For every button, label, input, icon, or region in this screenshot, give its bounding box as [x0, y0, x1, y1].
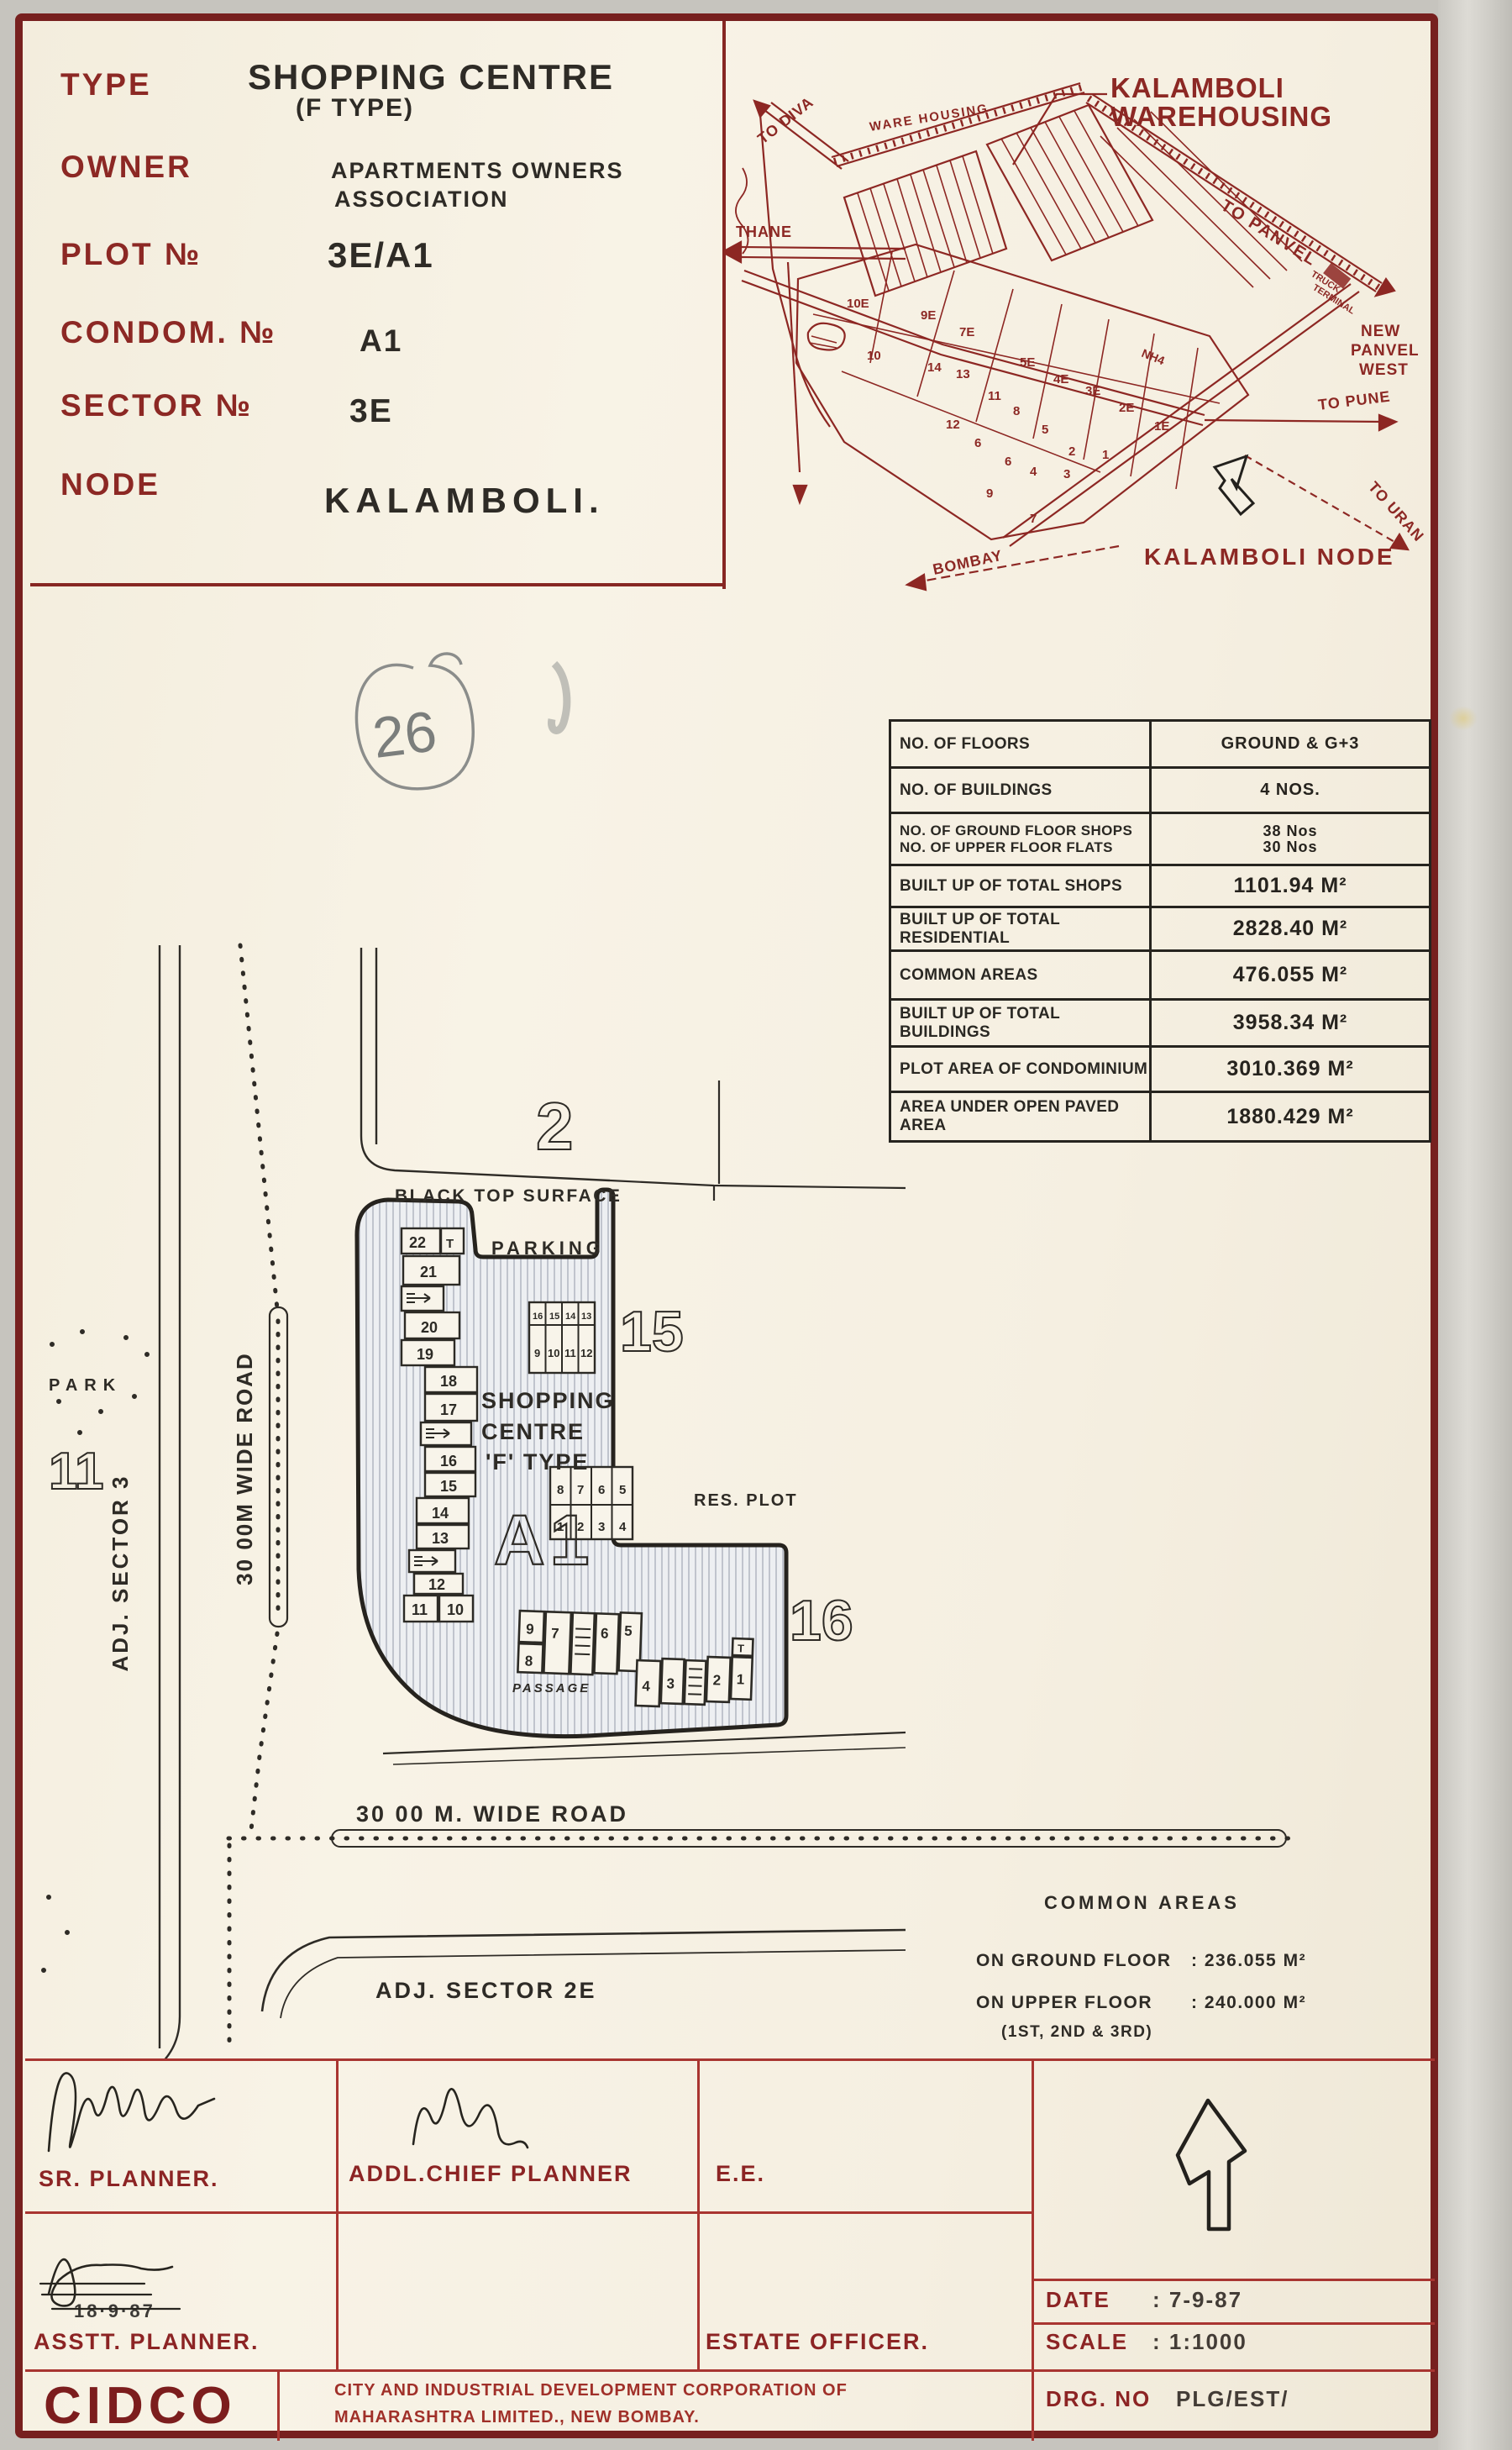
plot-number-16: 16	[790, 1589, 853, 1653]
map-plot-number: 9E	[921, 308, 936, 323]
row-label: BUILT UP OF TOTAL SHOPS	[900, 877, 1149, 896]
road-south-label: 30 00 M. WIDE ROAD	[356, 1801, 628, 1827]
map-plot-number: 3	[1063, 467, 1070, 481]
adj-sector-2e-label: ADJ. SECTOR 2E	[375, 1978, 597, 2003]
plots-band-outline	[796, 244, 1248, 539]
map-plot-number: 14	[927, 360, 942, 375]
ground-floor-label: ON GROUND FLOOR	[976, 1951, 1172, 1971]
signatures-layer	[25, 2050, 1436, 2450]
sector-no-value: 3E	[349, 393, 393, 430]
type-label: TYPE	[60, 67, 152, 103]
scan-edge	[1438, 0, 1512, 2450]
type-value-2: (F TYPE)	[296, 94, 414, 123]
shopping-centre-label-2: CENTRE	[481, 1419, 585, 1444]
stair-unit	[685, 1660, 706, 1705]
to-uran-label: TO URAN	[1365, 478, 1427, 544]
table-row: NO. OF BUILDINGS 4 NOS.	[891, 769, 1429, 814]
map-plot-number: 1E	[1154, 419, 1169, 434]
shop-number: 13	[432, 1530, 449, 1547]
shop-number: 15	[440, 1478, 457, 1495]
road-to-uran	[1245, 455, 1396, 543]
owner-value: APARTMENTS OWNERS	[331, 158, 624, 184]
shop-number: 6	[601, 1626, 609, 1642]
map-plot-number: 12	[946, 418, 960, 432]
grid-shop-number: 11	[564, 1347, 576, 1359]
road-se-boundary	[1003, 284, 1359, 546]
river	[736, 168, 748, 254]
pencil-smudge	[552, 664, 567, 730]
new-panvel-label-2: PANVEL	[1351, 342, 1420, 360]
row-label: NO. OF GROUND FLOOR SHOPS	[900, 823, 1149, 839]
shop-number: 18	[440, 1373, 457, 1390]
map-plot-number: 11	[988, 389, 1001, 403]
grid-shop-number: 16	[533, 1312, 543, 1322]
road-nh4	[742, 271, 1205, 425]
upper-floor-value: : 240.000 M²	[1191, 1993, 1306, 2013]
plot-number-11: 11	[49, 1443, 104, 1501]
shop-number: 3	[666, 1675, 675, 1691]
map-title-2: WAREHOUSING	[1110, 101, 1332, 132]
map-plot-number: 7	[1030, 512, 1037, 526]
table-row: NO. OF FLOORS GROUND & G+3	[891, 722, 1429, 769]
shop-number: T	[446, 1237, 454, 1251]
row-label: NO. OF BUILDINGS	[900, 781, 1149, 800]
site-plan: 2 BLACK TOP SURFACE PARKING 15 16 11 PAR…	[25, 924, 1336, 2058]
shop-number: 12	[428, 1576, 445, 1593]
title-block-bottom-rule	[30, 583, 726, 586]
building-label-a1: A1	[494, 1501, 594, 1580]
shop-number: 10	[447, 1601, 464, 1618]
grid-shop-number: 13	[581, 1312, 591, 1322]
table-row: BUILT UP OF TOTAL SHOPS 1101.94 M²	[891, 866, 1429, 908]
grid-shop-number: 1	[557, 1520, 564, 1534]
shop-number: 11	[412, 1601, 428, 1618]
new-panvel-label-1: NEW	[1361, 323, 1400, 340]
shop-number: 4	[642, 1678, 651, 1694]
row-label-2: NO. OF UPPER FLOOR FLATS	[900, 839, 1149, 856]
row-value: 1101.94 M²	[1233, 875, 1347, 896]
arrowhead-pune	[1379, 415, 1396, 430]
grid-shop-number: 9	[534, 1347, 540, 1359]
passage-label: PASSAGE	[512, 1681, 591, 1696]
grid-shop-number: 8	[557, 1483, 564, 1497]
shop-number: 16	[440, 1453, 457, 1469]
addl-chief-planner-signature	[413, 2089, 528, 2148]
shop-number: 8	[525, 1653, 533, 1669]
arrowhead-south	[794, 486, 806, 502]
shop-number: 1	[736, 1671, 744, 1687]
shop-number: 20	[421, 1319, 438, 1336]
common-areas-heading: COMMON AREAS	[1044, 1892, 1240, 1914]
to-diva-label: TO DIVA	[754, 93, 816, 147]
grid-shop-number: 5	[619, 1483, 626, 1497]
grid-shop-number: 4	[619, 1520, 627, 1534]
map-plot-number: 2	[1068, 444, 1075, 459]
node-pointer-icon	[1215, 456, 1253, 514]
shop-number: 19	[417, 1346, 433, 1363]
shop-number: T	[738, 1642, 745, 1654]
upper-floor-label: ON UPPER FLOOR	[976, 1993, 1152, 2013]
pencil-annotation: 26	[336, 634, 613, 811]
road-west-label: 30 00M WIDE ROAD	[232, 1352, 257, 1585]
map-plot-number: 3E	[1085, 384, 1100, 398]
shop-number: 14	[432, 1505, 449, 1522]
grid-shop-number: 7	[577, 1483, 584, 1497]
road-edge	[610, 1180, 906, 1188]
shopping-centre-label-3: 'F' TYPE	[486, 1449, 589, 1475]
table-row: NO. OF GROUND FLOOR SHOPS NO. OF UPPER F…	[891, 814, 1429, 866]
arrowhead-diva	[754, 101, 769, 117]
owner-value-2: ASSOCIATION	[334, 187, 509, 213]
shop-number: 9	[526, 1621, 534, 1637]
shop-number: 5	[624, 1622, 633, 1638]
map-plot-number: 5E	[1020, 355, 1035, 370]
map-plot-number: 1	[1102, 448, 1109, 462]
black-top-surface-label: BLACK TOP SURFACE	[395, 1186, 622, 1206]
shop-number: 7	[551, 1625, 559, 1641]
asstt-planner-signature	[49, 2259, 172, 2305]
map-plot-number: 7E	[959, 325, 974, 339]
upper-floor-note: (1ST, 2ND & 3RD)	[1001, 2023, 1152, 2042]
grid-shop-number: 15	[549, 1312, 559, 1322]
grid-shop-number: 2	[577, 1520, 584, 1534]
location-map: KALAMBOLI WAREHOUSING WARE HOUSING TO DI…	[724, 50, 1431, 598]
plots-band-road	[813, 314, 1220, 472]
ground-floor-value: : 236.055 M²	[1191, 1951, 1306, 1971]
map-plot-number: 10	[867, 349, 881, 363]
row-value: 4 NOS.	[1260, 781, 1320, 799]
plot-number-2: 2	[536, 1089, 574, 1164]
node-label: NODE	[60, 467, 160, 502]
shop-unit	[594, 1613, 618, 1674]
map-plot-number: 5	[1042, 423, 1048, 437]
grid-shop-number: 12	[580, 1347, 592, 1359]
map-plot-number: 4	[1030, 465, 1037, 479]
adj-sector-3-label: ADJ. SECTOR 3	[108, 1474, 133, 1671]
plot-no-value: 3E/A1	[328, 235, 434, 276]
kalamboli-node-label: KALAMBOLI NODE	[1144, 544, 1395, 570]
grid-shop-number: 3	[598, 1520, 605, 1534]
owner-label: OWNER	[60, 150, 192, 185]
row-value: GROUND & G+3	[1221, 735, 1360, 753]
map-plot-number: 6	[1005, 455, 1011, 469]
map-plot-number: 13	[956, 367, 970, 381]
stair-unit	[570, 1612, 595, 1675]
row-label: NO. OF FLOORS	[900, 735, 1149, 754]
shop-number: 2	[712, 1672, 721, 1688]
arrowhead-thane	[724, 242, 741, 262]
thane-label: THANE	[736, 223, 792, 240]
to-pune-label: TO PUNE	[1317, 388, 1391, 413]
road-edge	[143, 945, 180, 2058]
shopping-centre-label-1: SHOPPING	[481, 1388, 615, 1413]
plot-no-label: PLOT №	[60, 237, 202, 272]
grid-shop-number: 10	[548, 1347, 559, 1359]
road-to-pune	[1205, 420, 1383, 422]
warehousing-label: WARE HOUSING	[869, 102, 990, 134]
new-panvel-label-3: WEST	[1359, 361, 1409, 379]
shop-number: 21	[420, 1264, 437, 1280]
warehouse-grid-lines	[858, 156, 993, 291]
map-title-1: KALAMBOLI	[1110, 72, 1284, 103]
condom-no-label: CONDOM. №	[60, 315, 276, 350]
nh4-label: NH4	[1140, 346, 1167, 367]
north-arrow-icon	[1178, 2100, 1245, 2229]
road-centerline-dots	[240, 945, 277, 1309]
park-label: PARK	[49, 1376, 122, 1395]
map-plot-number: 4E	[1053, 372, 1068, 386]
warehouse-grid-lines	[1001, 111, 1138, 255]
grid-shop-number: 14	[565, 1312, 576, 1322]
road-centerline-dots	[251, 1633, 277, 1830]
pencil-number: 26	[370, 699, 440, 770]
warehouse-band-lines	[1100, 112, 1302, 287]
map-plot-number: 9	[986, 486, 993, 501]
shop-unit	[543, 1611, 571, 1674]
parking-label: PARKING	[491, 1238, 605, 1259]
node-value: KALAMBOLI.	[324, 481, 605, 521]
shop-number: 22	[409, 1234, 426, 1251]
shop-number: 17	[440, 1401, 457, 1418]
arrowhead-bombay	[907, 575, 926, 590]
grid-shop-number: 6	[598, 1483, 605, 1497]
sector-no-label: SECTOR №	[60, 388, 253, 423]
condom-no-value: A1	[360, 323, 402, 359]
row-value-2: 30 Nos	[1263, 839, 1317, 855]
sr-planner-signature	[49, 2073, 214, 2151]
plot-division-lines	[870, 252, 1198, 489]
res-plot-label: RES. PLOT	[694, 1491, 798, 1510]
type-value: SHOPPING CENTRE	[248, 57, 614, 97]
map-plot-number: 10E	[847, 297, 869, 311]
map-plot-number: 8	[1013, 404, 1020, 418]
map-plot-number: 6	[974, 436, 981, 450]
bombay-label: BOMBAY	[932, 547, 1005, 578]
road-thane	[741, 247, 906, 259]
map-plot-number: 2E	[1119, 401, 1134, 415]
plot-number-15: 15	[620, 1300, 684, 1364]
row-value: 38 Nos	[1263, 823, 1317, 839]
